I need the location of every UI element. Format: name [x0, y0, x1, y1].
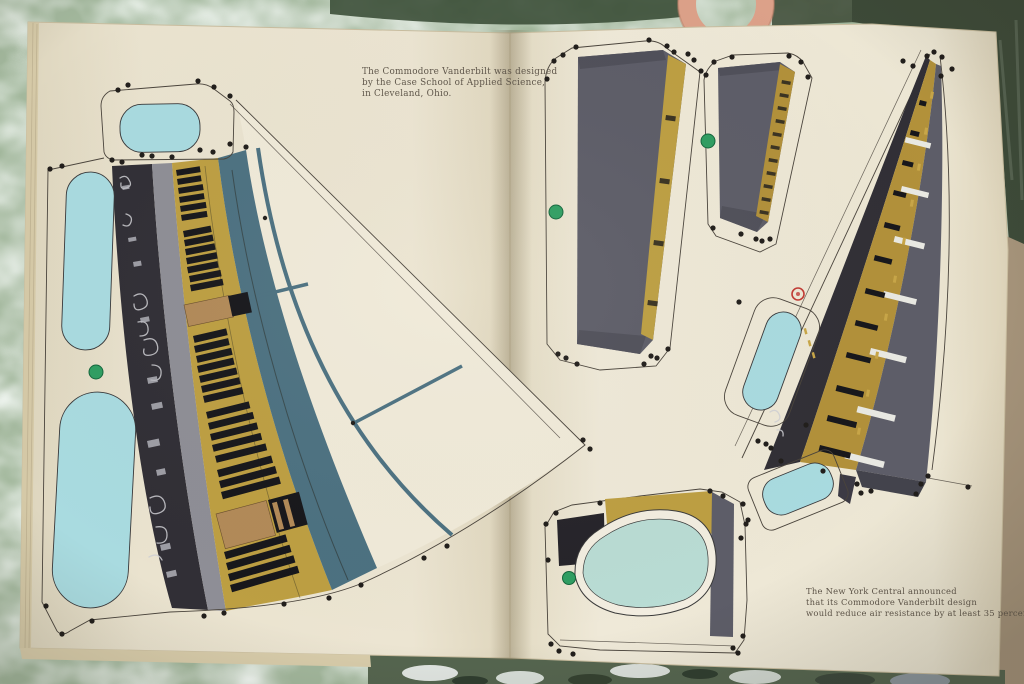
photo-vignette: [0, 0, 1024, 684]
photo-of-paper-model-book: The Commodore Vanderbilt was designed by…: [0, 0, 1024, 684]
book-photo-scene: The Commodore Vanderbilt was designed by…: [0, 0, 1024, 684]
